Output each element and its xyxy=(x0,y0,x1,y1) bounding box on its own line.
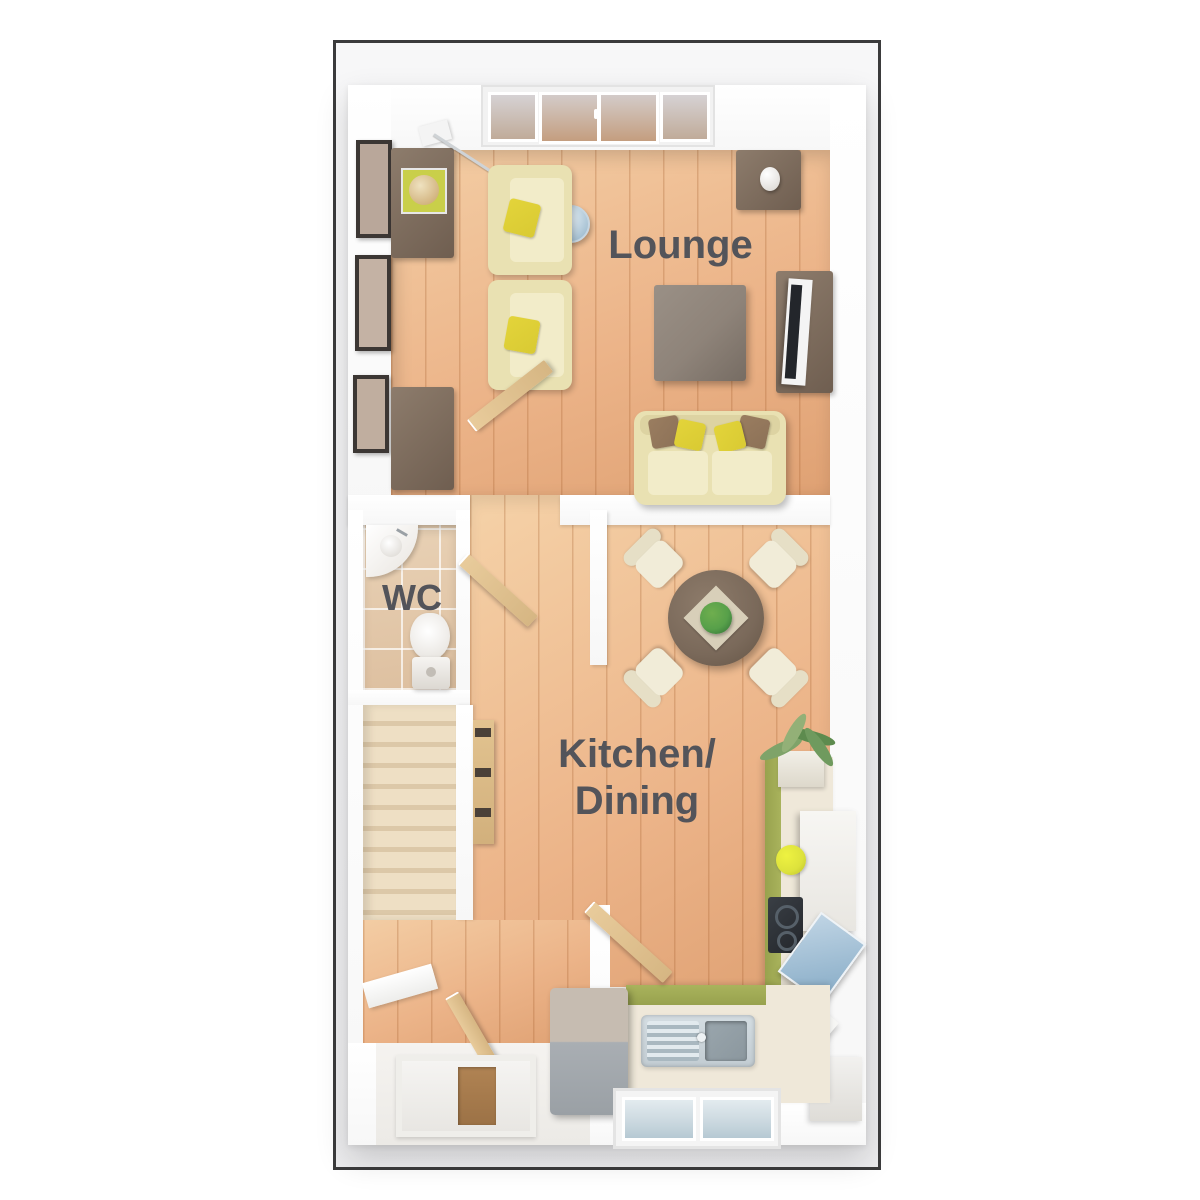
sofa-seat-cushion xyxy=(712,451,772,495)
door-pane-right xyxy=(598,92,659,144)
decor-tray xyxy=(401,168,447,214)
sink-drainer xyxy=(647,1021,699,1061)
dining-table xyxy=(668,570,764,666)
window-pane-left xyxy=(488,92,538,142)
dining-chair xyxy=(742,525,811,594)
decor-bowl xyxy=(409,175,439,205)
basin-tap-icon xyxy=(396,528,408,537)
lemon-bowl xyxy=(776,845,806,875)
porch-side-wall xyxy=(348,1043,376,1145)
side-table xyxy=(736,150,801,210)
wall-kitchen-partition xyxy=(590,510,607,665)
plan-frame: Lounge xyxy=(333,40,881,1170)
yellow-cushion xyxy=(673,418,706,451)
flush-button-icon xyxy=(426,667,436,677)
wall-picture xyxy=(356,140,392,238)
plant-pot xyxy=(778,751,824,787)
door-handle-icon xyxy=(594,109,598,119)
sideboard-top xyxy=(391,148,454,258)
french-doors xyxy=(481,85,715,147)
armchair-1 xyxy=(488,165,572,275)
dining-chair xyxy=(620,525,689,594)
yellow-cushion xyxy=(503,315,540,354)
dining-chair xyxy=(620,641,689,710)
tall-cabinet xyxy=(800,811,856,931)
vase xyxy=(760,167,780,191)
sofa-seat-cushion xyxy=(648,451,708,495)
lounge-label: Lounge xyxy=(598,223,763,268)
dining-chair xyxy=(742,641,811,710)
stair-banister xyxy=(456,705,473,920)
window-pane-right xyxy=(660,92,710,142)
wc-label: WC xyxy=(372,577,452,619)
wall-mid-left xyxy=(348,495,470,525)
door-mat xyxy=(458,1067,496,1125)
coffee-table xyxy=(654,285,746,381)
table-plant-icon xyxy=(700,602,732,634)
kitchen-dining-label: Kitchen/ Dining xyxy=(537,731,737,825)
hall-shelf-unit xyxy=(473,720,494,844)
kitchen-label-line1: Kitchen/ xyxy=(537,731,737,778)
sideboard-bottom xyxy=(391,387,454,490)
toilet-cistern xyxy=(412,657,450,689)
wall-wc-bottom xyxy=(348,690,470,705)
wall-picture xyxy=(355,255,391,351)
kitchen-window xyxy=(613,1088,781,1149)
building-outline: Lounge xyxy=(348,85,866,1145)
sink-basin xyxy=(705,1021,747,1061)
dining-set xyxy=(624,526,808,710)
toilet-seat xyxy=(410,613,450,659)
kitchen-label-line2: Dining xyxy=(537,778,737,825)
front-door xyxy=(396,1055,536,1137)
sink-tap-icon xyxy=(697,1033,706,1042)
floorplan-image: Lounge xyxy=(0,0,1200,1200)
door-pane-left xyxy=(539,92,600,144)
sofa xyxy=(634,411,786,505)
window-pane xyxy=(622,1097,696,1141)
kitchen-sink xyxy=(641,1015,755,1067)
palm-plant xyxy=(752,721,844,793)
window-pane xyxy=(700,1097,774,1141)
wall-wc-right xyxy=(456,510,470,705)
staircase xyxy=(363,705,456,920)
tv-screen xyxy=(785,284,803,379)
basin-bowl xyxy=(380,535,402,557)
wall-picture xyxy=(353,375,389,453)
green-cabinet-front xyxy=(626,985,766,1005)
